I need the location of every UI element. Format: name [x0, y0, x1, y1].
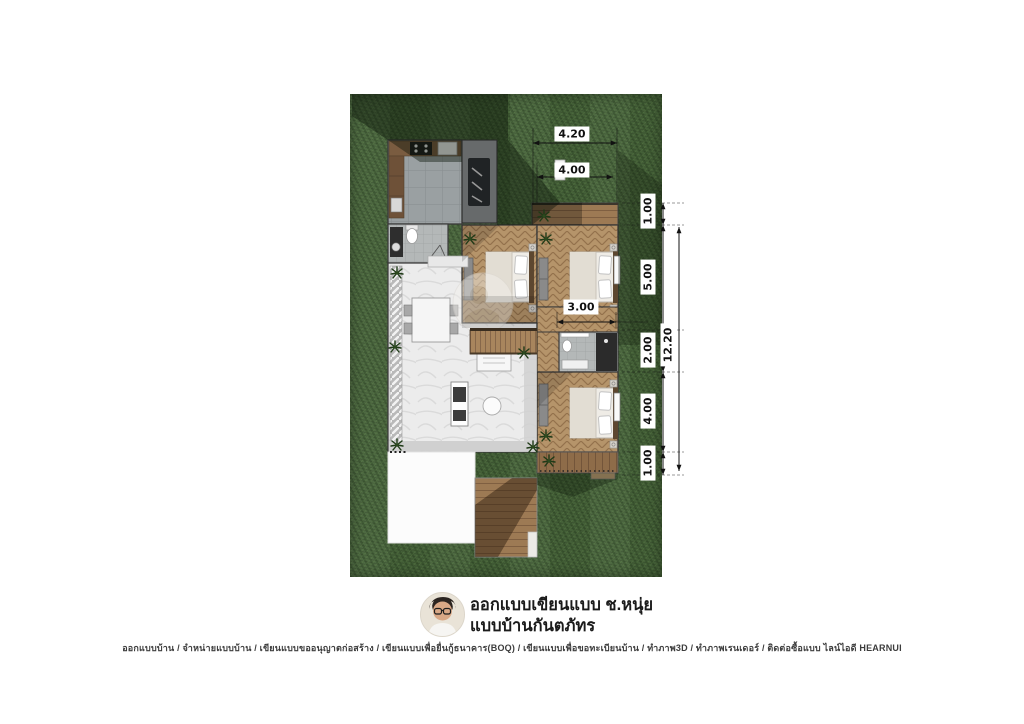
fridge: [391, 198, 402, 212]
dining-set: [404, 298, 458, 342]
dim-label-top-outer: 4.20: [554, 127, 589, 142]
toilet: [563, 340, 572, 352]
wood-walkway: [475, 478, 537, 557]
dim-label-right-4: 4.00: [641, 393, 656, 428]
vanity: [562, 360, 588, 369]
shower: [596, 333, 617, 371]
designer-photo-icon: [421, 593, 464, 636]
louver-wall: [390, 266, 402, 442]
dim-label-interior: 3.00: [563, 300, 598, 315]
window: [614, 393, 620, 421]
shelf-unit: [451, 382, 468, 426]
bed: [570, 251, 618, 303]
dim-label-right-2: 5.00: [641, 259, 656, 294]
bathroom-2: [559, 332, 618, 372]
walkway-pillar: [528, 532, 537, 557]
carport-pad: [388, 452, 475, 543]
dim-label-right-5: 1.00: [641, 445, 656, 480]
designer-avatar: [420, 592, 465, 637]
laundry-unit: [390, 227, 403, 257]
ottoman: [483, 397, 501, 415]
window: [561, 333, 589, 337]
washing-machine: [392, 243, 400, 251]
dim-label-right-3: 2.00: [641, 332, 656, 367]
designer-title: ออกแบบเขียนแบบ ช.หนุ่ย: [470, 595, 653, 616]
toilet: [407, 229, 418, 244]
tv-console: [477, 354, 511, 371]
studio-name: แบบบ้านกันตภัทร: [470, 616, 653, 637]
dim-label-right-total: 12.20: [661, 324, 676, 367]
services-line: ออกแบบบ้าน / จำหน่ายแบบบ้าน / เขียนแบบขอ…: [0, 641, 1024, 655]
wardrobe: [539, 258, 548, 300]
designer-title-block: ออกแบบเขียนแบบ ช.หนุ่ย แบบบ้านกันตภัทร: [470, 595, 653, 637]
bed: [570, 387, 618, 439]
dim-label-top-inner: 4.00: [554, 163, 589, 178]
floor-plan-page: 4.20 4.00 1.00 5.00 2.00 4.00 1.00 12.20…: [0, 0, 1024, 724]
dim-label-right-1: 1.00: [641, 193, 656, 228]
